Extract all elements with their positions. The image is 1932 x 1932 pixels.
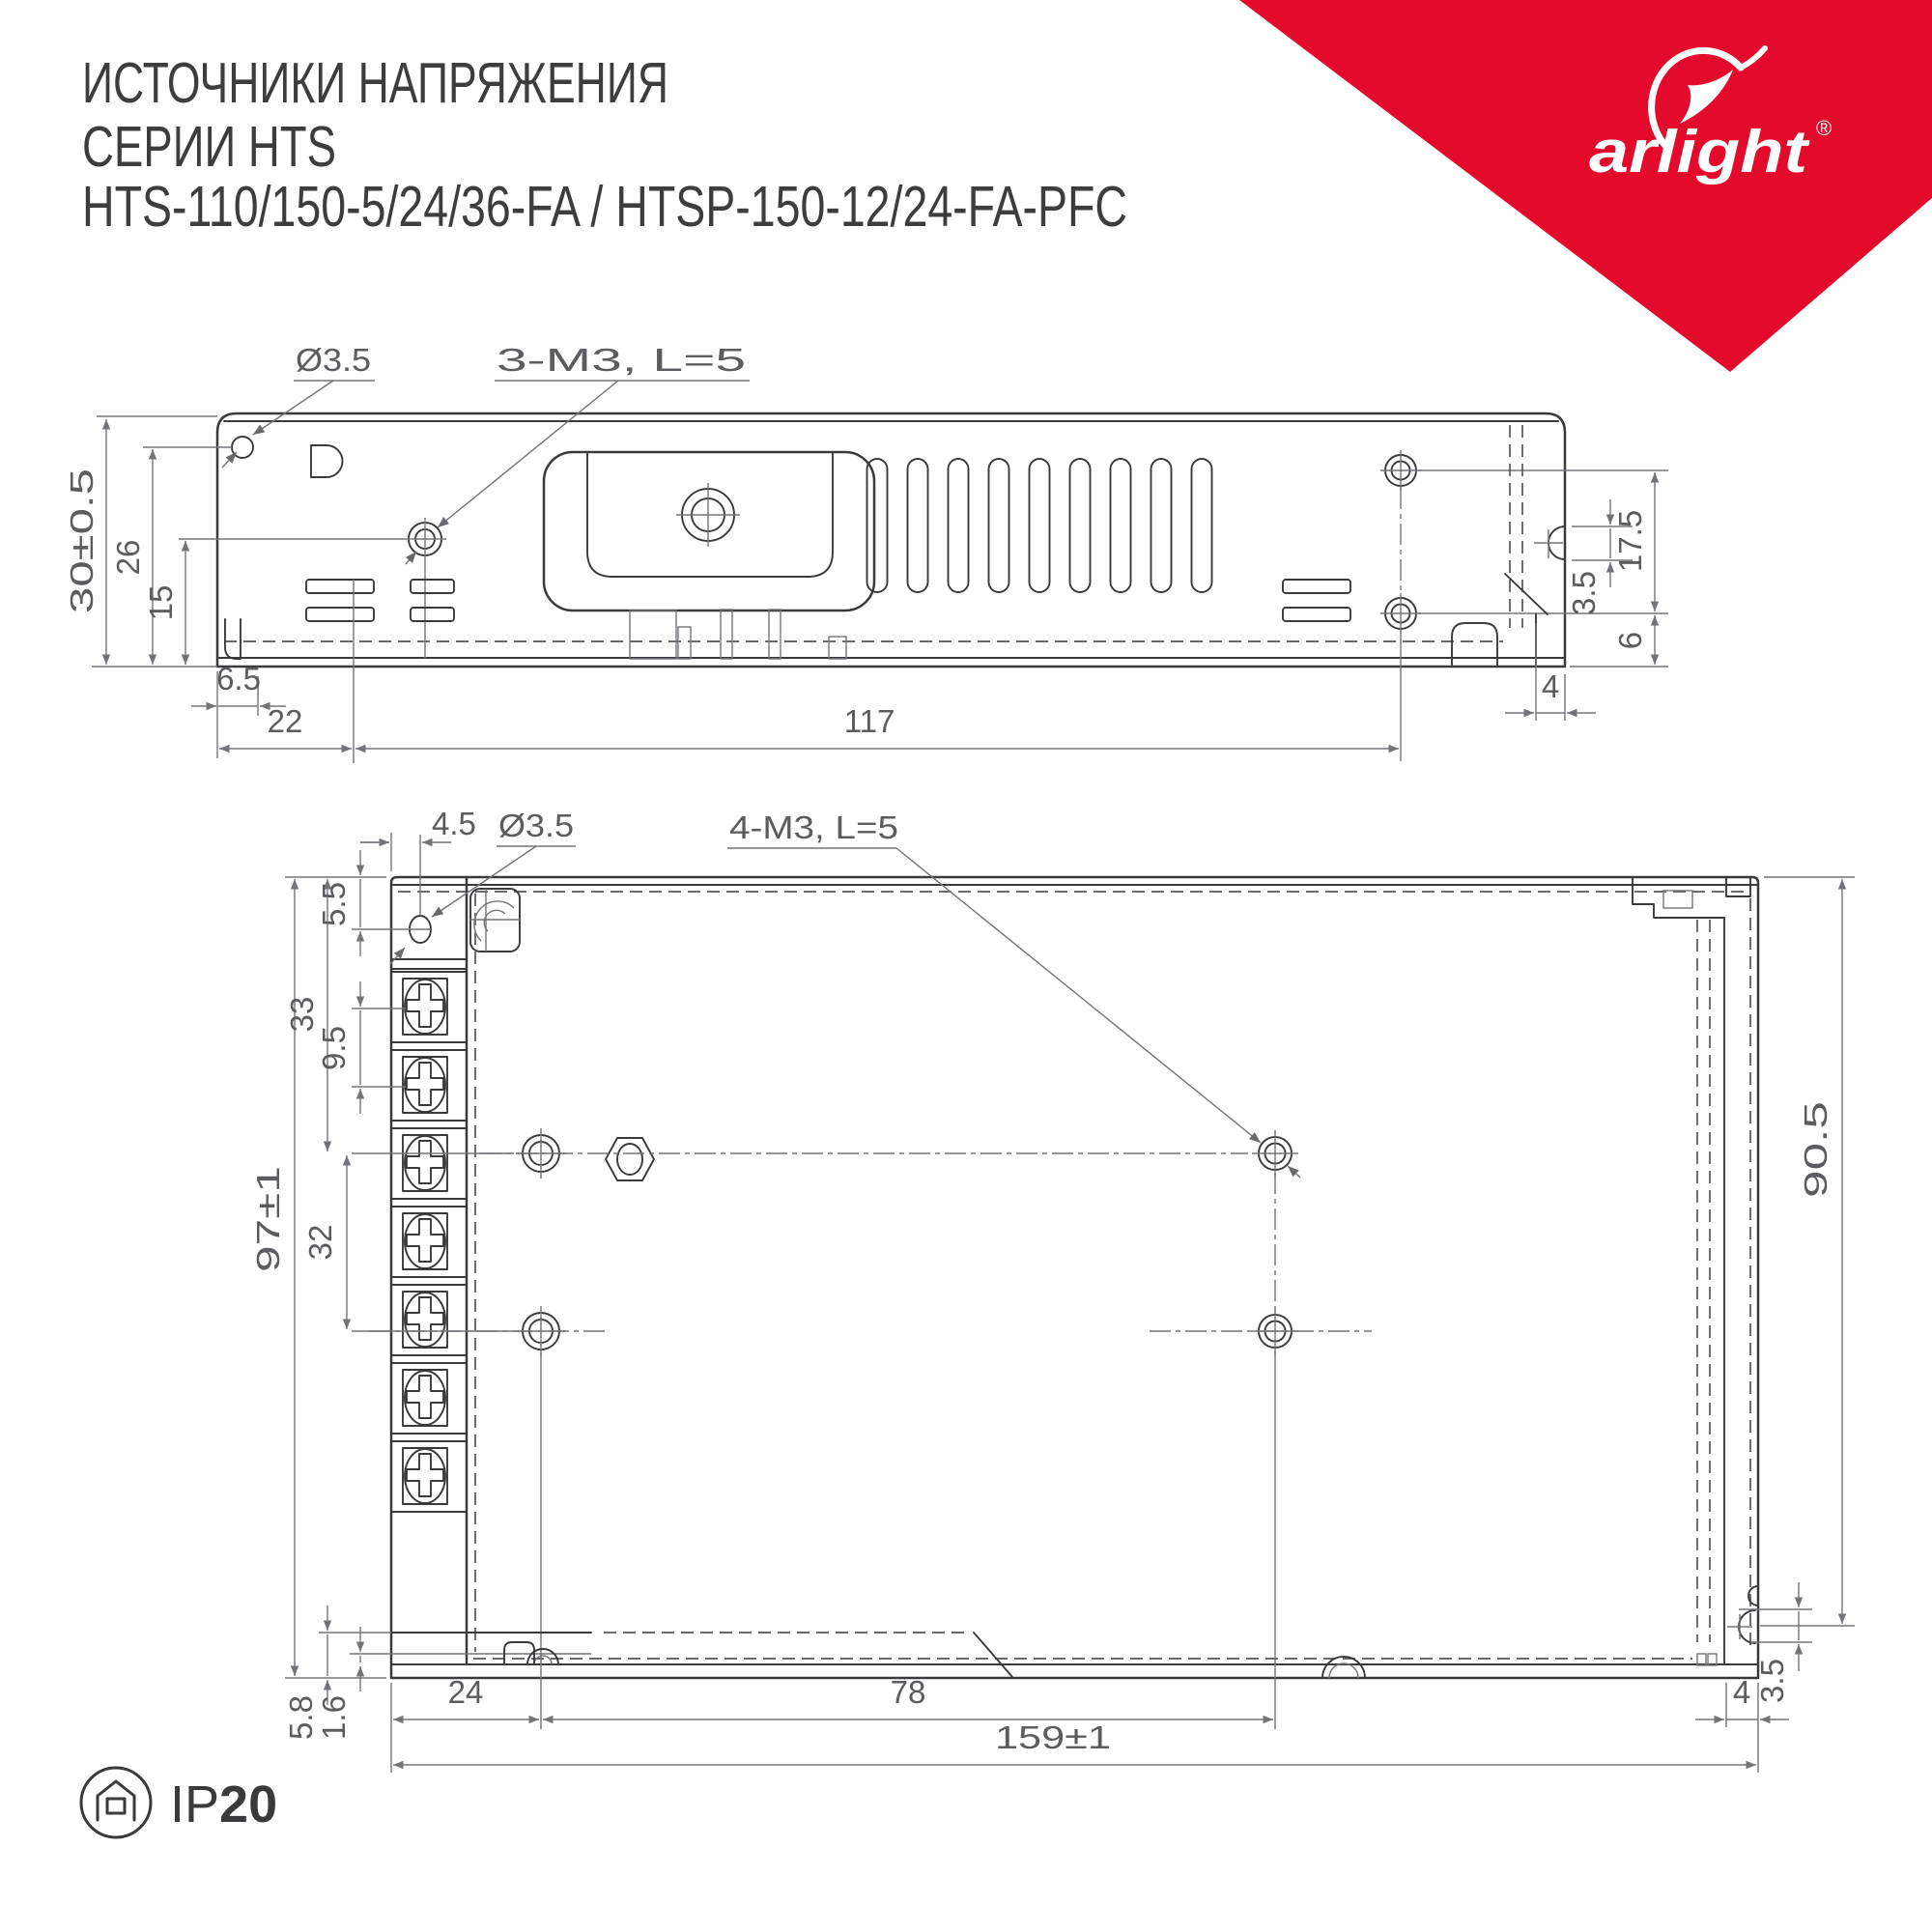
dim-33-label: 33 <box>284 997 320 1033</box>
dim-5-5-label: 5.5 <box>316 882 352 926</box>
registered-trademark: ® <box>1816 116 1832 140</box>
dim-4-label: 4 <box>1542 668 1559 704</box>
drawing-canvas: ИСТОЧНИКИ НАПРЯЖЕНИЯ СЕРИИ HTS HTS-110/1… <box>0 0 1932 1932</box>
dim-1-6-label: 1.6 <box>316 1695 352 1740</box>
dim-6-5-label: 6.5 <box>216 661 261 696</box>
screw-spec-label: 4-M3, L=5 <box>729 810 898 845</box>
bottom-view-right-dimensions <box>1739 877 1855 1671</box>
chassis-mounting-holes <box>352 1128 1372 1729</box>
ip-rating-badge: IP20 <box>81 1768 277 1837</box>
side-slot-pairs <box>306 580 1350 621</box>
title-line-3: HTS-110/150-5/24/36-FA / HTSP-150-12/24-… <box>82 175 1127 239</box>
hole-diameter-label: Ø3.5 <box>296 342 371 378</box>
dim-5-8-label: 5.8 <box>283 1695 319 1740</box>
hole-diameter-label: Ø3.5 <box>498 808 574 843</box>
datasheet-page: ИСТОЧНИКИ НАПРЯЖЕНИЯ СЕРИИ HTS HTS-110/1… <box>0 0 1932 1932</box>
d-shaped-hole <box>311 445 343 477</box>
vent-slots <box>867 459 1212 592</box>
adjustment-potentiometer <box>470 889 520 952</box>
dim-78-label: 78 <box>891 1674 926 1710</box>
dim-4-5-label: 4.5 <box>432 806 476 841</box>
title-line-1: ИСТОЧНИКИ НАПРЯЖЕНИЯ <box>82 51 668 115</box>
dim-117-label: 117 <box>844 703 895 739</box>
ip-rating-text: IP20 <box>170 1776 277 1833</box>
dim-26-label: 26 <box>110 540 146 576</box>
dim-9-5-label: 9.5 <box>316 1026 352 1070</box>
terminal-screws <box>403 979 447 1504</box>
right-foot-tab <box>1452 623 1497 667</box>
arlight-wordmark: arlight <box>1589 119 1810 185</box>
page-title: ИСТОЧНИКИ НАПРЯЖЕНИЯ СЕРИИ HTS HTS-110/1… <box>82 51 1127 239</box>
ip-prefix: IP <box>170 1776 219 1833</box>
dim-90-5-label: 90.5 <box>1798 1101 1833 1198</box>
ip-value: 20 <box>219 1776 277 1833</box>
bottom-view-body-outline <box>391 877 1758 1678</box>
house-window <box>107 1799 125 1813</box>
title-line-2: СЕРИИ HTS <box>82 115 336 179</box>
dim-3-5-label: 3.5 <box>1754 1659 1790 1703</box>
dim-17-5-label: 17.5 <box>1612 510 1648 572</box>
dim-22-label: 22 <box>268 703 303 739</box>
dim-15-label: 15 <box>143 585 179 621</box>
brand-banner: arlight ® <box>1239 0 1932 372</box>
dim-height-label: 30±0.5 <box>64 469 99 613</box>
red-corner-ribbon <box>1239 0 1932 372</box>
dim-3-5-label: 3.5 <box>1566 571 1602 615</box>
screw-spec-label: 3-M3, L=5 <box>497 342 746 378</box>
dim-24-label: 24 <box>448 1674 484 1710</box>
bottom-view-right-wall <box>1633 877 1758 1665</box>
m3-screw-hole <box>179 518 446 658</box>
ip-badge-circle <box>81 1768 151 1837</box>
top-view-drawing: Ø3.5 3-M3, L=5 30±0.5 26 15 6.5 22 117 1… <box>64 342 1668 763</box>
dim-4-label: 4 <box>1733 1674 1750 1710</box>
dim-32-label: 32 <box>302 1225 338 1261</box>
dim-width-label: 159±1 <box>995 1719 1111 1755</box>
dim-6-label: 6 <box>1612 632 1648 649</box>
bottom-view-drawing: 4.5 Ø3.5 4-M3, L=5 <box>250 806 1855 1773</box>
top-view-body-outline <box>217 413 1565 667</box>
bottom-view-internals <box>391 1633 1365 1678</box>
label-plate <box>544 452 874 611</box>
terminal-strip <box>391 877 475 1664</box>
right-screw-holes <box>1380 450 1668 761</box>
bottom-view-labels: 4.5 Ø3.5 4-M3, L=5 <box>360 806 1300 1178</box>
dim-height-label: 97±1 <box>250 1166 286 1272</box>
top-view-right-end <box>1452 425 1565 667</box>
